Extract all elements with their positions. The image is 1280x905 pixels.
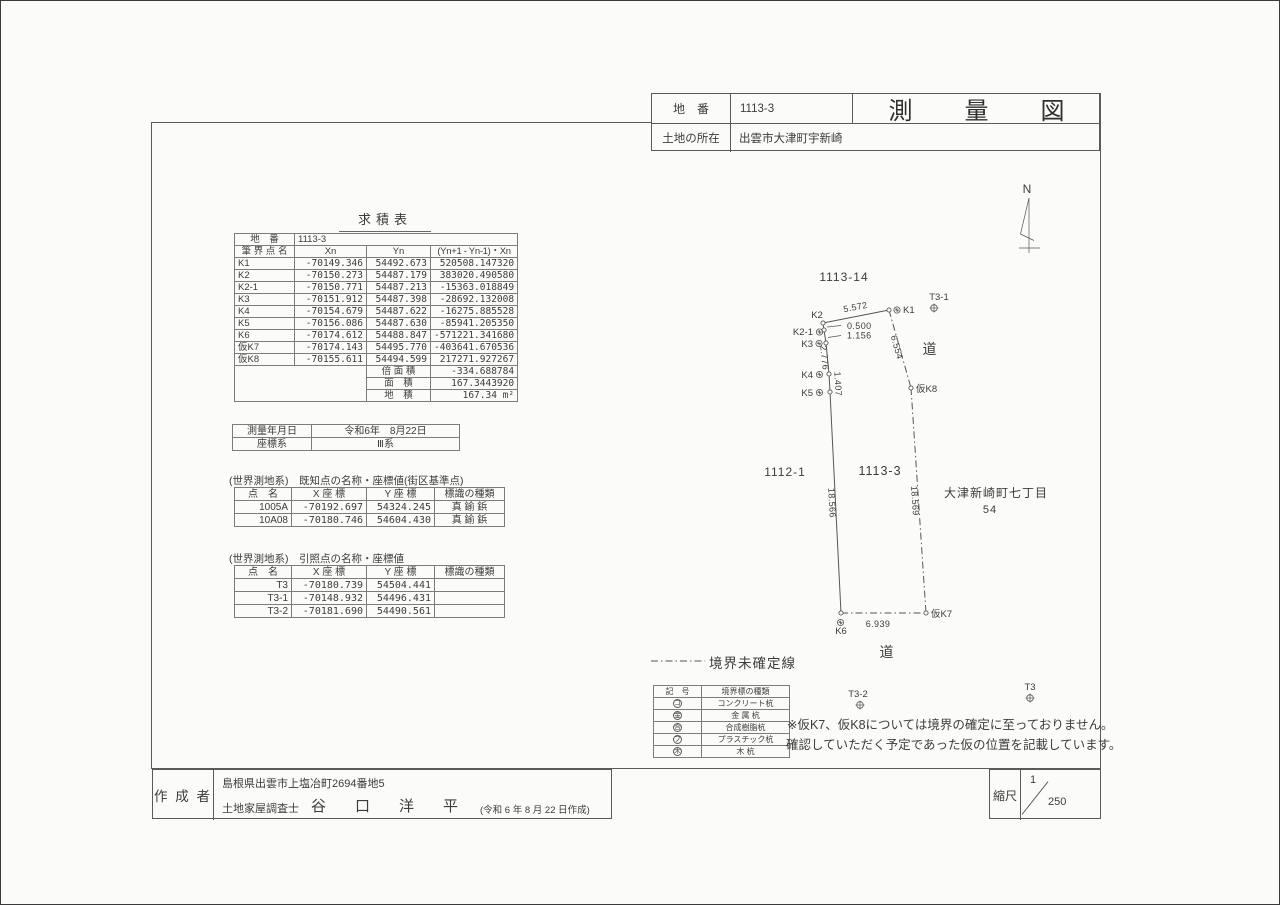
boundary-marker-symbols [816,307,900,626]
table: 記 号境界標の種類ココンクリート杭金金 属 杭合合成樹脂杭ププラスチック杭木木 … [653,685,790,758]
boundary-line-undetermined [911,388,926,613]
land-location-label: 土地の所在 [652,123,730,152]
table-cell: -16275.885528 [431,306,518,318]
boundary-line [823,310,889,323]
parcel-label-cell: 地 番 [235,234,295,246]
table-cell: -70155.611 [295,354,367,366]
author-block: 作 成 者 島根県出雲市上塩冶町2694番地5 土地家屋調査士 谷 口 洋 平 … [152,769,612,819]
area-label: 道 [923,341,938,357]
vertex-point [828,390,832,394]
point-labels: K1K2K2-1K3K4K5K6仮K7仮K8T3-1T3T3-2 [793,292,1036,700]
point-label: K5 [801,388,813,399]
column-header-cell: Yn [367,246,431,258]
column-header-cell: X 座 標 [292,488,367,501]
table-cell: -70150.273 [295,270,367,282]
table-row: ププラスチック杭 [654,734,790,746]
note-line-1: ※仮K7、仮K8については境界の確定に至っておりません。 [787,714,1114,733]
table-cell: -15363.018849 [431,282,518,294]
table-cell: K2-1 [235,282,295,294]
parcel-area-value: 167.34 m² [431,390,518,402]
legend-label-cell: コンクリート杭 [702,698,790,710]
marker-tick [818,373,821,376]
reference-points-caption: (世界測地系) 引照点の名称・座標値 [229,551,404,566]
boundary-line-undetermined [889,310,911,388]
ref-marker-circle [931,305,938,312]
table-cell: T3-1 [235,592,292,605]
point-label: K2 [811,310,823,321]
marker-tick [818,331,821,334]
table-cell: 54490.561 [367,605,435,618]
table-cell: -70180.739 [292,579,367,592]
table-cell: 54492.673 [367,258,431,270]
dimension-label: 1.156 [847,331,872,341]
vertex-point [839,611,843,615]
reference-points-table: 点 名X 座 標Y 座 標標識の種類T3-70180.73954504.441T… [234,565,505,618]
table-row: 点 名X 座 標Y 座 標標識の種類 [235,488,505,501]
parcel-and-road-labels: 1113-141112-11113-3大津新崎町七丁目54道道 [764,270,1048,660]
table-cell [435,605,505,618]
table-row: 仮K8-70155.61154494.599217271.927267 [235,354,518,366]
table-cell: -28692.132008 [431,294,518,306]
area-label: 1112-1 [764,465,806,479]
table: 地 番1113-3筆 界 点 名XnYn(Yn+1 - Yn-1)・XnK1-7… [234,233,518,402]
marker-tick [839,621,842,624]
table-cell: T3-2 [235,605,292,618]
area-calculation-table: 地 番1113-3筆 界 点 名XnYn(Yn+1 - Yn-1)・XnK1-7… [234,233,518,402]
area-label: 54 [983,504,997,516]
column-header-cell: (Yn+1 - Yn-1)・Xn [431,246,518,258]
marker-circle [816,340,822,346]
scale-denominator: 250 [1048,796,1066,808]
frame-left [151,122,152,769]
column-header-cell: 点 名 [235,488,292,501]
table-cell: K4 [235,306,295,318]
ref-marker-circle [1027,695,1034,702]
empty-cell [235,366,367,402]
table-row: K2-70150.27354487.179383020.490580 [235,270,518,282]
dimension-label: 6.554 [889,334,905,360]
table-row: 10A08-70180.74654604.430真 鍮 鋲 [235,514,505,527]
area-label: 1113-3 [858,464,901,478]
table-cell: 1005A [235,501,292,514]
table-row: 座標系Ⅲ系 [233,438,460,451]
table-row: 記 号境界標の種類 [654,686,790,698]
area-label: 1113-14 [819,270,868,284]
dimension-labels: 5.5720.5001.1562.7761.40718.5666.55418.5… [818,300,921,629]
marker-tick [818,391,821,394]
table-cell: -70154.679 [295,306,367,318]
dimension-label: 1.407 [832,371,843,396]
north-label: N [1023,182,1032,196]
boundary-line [824,330,826,343]
point-label: T3-1 [929,292,949,303]
area-table-title: 求積表 [339,209,431,232]
column-header-cell: Y 座 標 [367,566,435,579]
known-points-table: 点 名X 座 標Y 座 標標識の種類1005A-70192.69754324.2… [234,487,505,527]
vertex-point [887,308,891,312]
legend-label-cell: 合成樹脂杭 [702,722,790,734]
dimension-label: 6.939 [866,619,891,629]
note-line-2: 確認していただく予定であった仮の位置を記載しています。 [786,734,1121,753]
table-row: K3-70151.91254487.398-28692.132008 [235,294,518,306]
created-date-note: (令和 6 年 8 月 22 日作成) [480,802,590,816]
table-cell: 54487.630 [367,318,431,330]
undetermined-boundary-sample-line [649,653,707,667]
table-cell: 54487.398 [367,294,431,306]
table-cell: -70149.346 [295,258,367,270]
table-cell: -70150.771 [295,282,367,294]
point-label: T3 [1024,682,1035,693]
dimension-label: 0.500 [847,321,872,331]
document-title-text: 測量図 [889,91,1117,126]
known-points-caption: (世界測地系) 既知点の名称・座標値(街区基準点) [229,473,464,488]
scale-numerator: 1 [1030,774,1036,786]
legend-symbol-cell: 木 [654,746,702,758]
area-label: 大津新崎町七丁目 [944,485,1048,500]
table-cell: T3 [235,579,292,592]
table-row: 仮K7-70174.14354495.770-403641.670536 [235,342,518,354]
boundary-marker-symbol: プ [673,735,682,744]
table-cell: 54487.179 [367,270,431,282]
table-cell: 令和6年 8月22日 [312,425,460,438]
double-area-label: 倍 面 積 [367,366,431,378]
table-row: 倍 面 積-334.688784 [235,366,518,378]
header-title-block: 地 番 1113-3 測量図 土地の所在 出雲市大津町宇新崎 [651,93,1100,151]
boundary-line [830,392,841,613]
legend-symbol-cell: 金 [654,710,702,722]
scale-label: 縮尺 [990,770,1020,820]
table: 点 名X 座 標Y 座 標標識の種類T3-70180.73954504.441T… [234,565,505,618]
vertex-point [821,321,825,325]
table-cell: -70156.086 [295,318,367,330]
table-cell: K6 [235,330,295,342]
leader-line [827,326,841,328]
vertex-point [909,386,913,390]
table-cell: 54496.431 [367,592,435,605]
table-cell: 54604.430 [367,514,435,527]
table-row: 木木 杭 [654,746,790,758]
marker-circle [894,307,900,313]
table-cell: 真 鍮 鋲 [435,501,505,514]
table-row: T3-70180.73954504.441 [235,579,505,592]
legend-label-cell: プラスチック杭 [702,734,790,746]
scale-divider [1020,770,1021,820]
table-row: 点 名X 座 標Y 座 標標識の種類 [235,566,505,579]
point-label: K2-1 [793,327,813,338]
table-cell: -571221.341680 [431,330,518,342]
legend-symbol-cell: 合 [654,722,702,734]
parcel-number-label: 地 番 [652,94,730,123]
table-row: K5-70156.08654487.630-85941.205350 [235,318,518,330]
table-cell: 座標系 [233,438,312,451]
reference-point-markers [856,304,1035,710]
vertex-point [924,611,928,615]
dimension-label: 18.566 [826,488,838,518]
parcel-number-value: 1113-3 [730,94,852,123]
table: 測量年月日令和6年 8月22日座標系Ⅲ系 [232,424,460,451]
table-cell: -85941.205350 [431,318,518,330]
table: 点 名X 座 標Y 座 標標識の種類1005A-70192.69754324.2… [234,487,505,527]
table-cell: 測量年月日 [233,425,312,438]
legend-label-cell: 金 属 杭 [702,710,790,722]
table-cell: 真 鍮 鋲 [435,514,505,527]
table-row: K2-1-70150.77154487.213-15363.018849 [235,282,518,294]
dimension-label: 2.776 [818,345,831,370]
surveyor-name: 谷 口 洋 平 [311,795,465,816]
table-cell: -70148.932 [292,592,367,605]
table-cell: K3 [235,294,295,306]
legend-table: 記 号境界標の種類ココンクリート杭金金 属 杭合合成樹脂杭ププラスチック杭木木 … [653,685,790,758]
vertex-point [827,372,831,376]
north-arrow-flag [1021,198,1035,241]
undetermined-boundary-label: 境界未確定線 [709,652,796,672]
column-header-cell: 点 名 [235,566,292,579]
double-area-value: -334.688784 [431,366,518,378]
table-row: K4-70154.67954487.622-16275.885528 [235,306,518,318]
vertex-point [824,341,828,345]
legend-symbol-cell: プ [654,734,702,746]
table-cell [435,592,505,605]
boundary-line [823,323,824,330]
ref-marker-circle [857,702,864,709]
table-row: 測量年月日令和6年 8月22日 [233,425,460,438]
area-label: 面 積 [367,378,431,390]
table-cell: 54495.770 [367,342,431,354]
marker-circle [816,329,822,335]
area-label: 道 [880,644,895,660]
boundary-marker-symbol: 金 [673,711,682,720]
table-row: K1-70149.34654492.673520508.147320 [235,258,518,270]
boundary-marker-symbol: 木 [673,747,682,756]
point-label: 仮K8 [916,383,937,395]
leader-line [828,336,841,338]
table-cell: 仮K7 [235,342,295,354]
author-address: 島根県出雲市上塩冶町2694番地5 [222,775,385,791]
table-row: T3-2-70181.69054490.561 [235,605,505,618]
table-cell [435,579,505,592]
parcel-boundary-lines [823,310,926,613]
dimension-leader-lines [827,326,841,338]
table-cell: K2 [235,270,295,282]
area-value: 167.3443920 [431,378,518,390]
table-cell: 仮K8 [235,354,295,366]
table-cell: -403641.670536 [431,342,518,354]
legend-label-cell: 木 杭 [702,746,790,758]
marker-circle [816,371,822,377]
marker-circle [816,389,822,395]
column-header-cell: 標識の種類 [435,566,505,579]
column-header-cell: 記 号 [654,686,702,698]
column-header-cell: 筆 界 点 名 [235,246,295,258]
boundary-line [826,343,829,374]
frame-right [1100,93,1101,819]
scale-block: 縮尺 1 250 [989,769,1101,819]
column-header-cell: 境界標の種類 [702,686,790,698]
boundary-point-vertices [821,308,928,615]
boundary-marker-symbol: コ [673,699,682,708]
table-row: 地 番1113-3 [235,234,518,246]
point-label: K4 [801,370,813,381]
north-arrow: N [1019,182,1040,253]
column-header-cell: Y 座 標 [367,488,435,501]
table-row: K6-70174.61254488.847-571221.341680 [235,330,518,342]
table-row: 合合成樹脂杭 [654,722,790,734]
boundary-line [829,374,830,392]
point-label: K6 [835,626,847,637]
table-cell: -70174.612 [295,330,367,342]
column-header-cell: Xn [295,246,367,258]
boundary-marker-symbol: 合 [673,723,682,732]
marker-tick [818,342,821,345]
document-title: 測量図 [852,94,1101,123]
table-cell: -70151.912 [295,294,367,306]
author-label: 作 成 者 [153,770,213,820]
marker-circle [837,619,843,625]
parcel-area-label: 地 積 [367,390,431,402]
table-cell: K1 [235,258,295,270]
table-row: 1005A-70192.69754324.245真 鍮 鋲 [235,501,505,514]
point-label: K3 [801,339,813,350]
table-cell: 54324.245 [367,501,435,514]
table-cell: 54494.599 [367,354,431,366]
marker-tick [896,309,899,312]
table-cell: Ⅲ系 [312,438,460,451]
point-label: T3-2 [848,689,868,700]
vertex-point [822,328,826,332]
table-row: 筆 界 点 名XnYn(Yn+1 - Yn-1)・Xn [235,246,518,258]
table-cell: -70181.690 [292,605,367,618]
table-row: 金金 属 杭 [654,710,790,722]
table-cell: K5 [235,318,295,330]
column-header-cell: X 座 標 [292,566,367,579]
table-cell: 54487.622 [367,306,431,318]
table-cell: 520508.147320 [431,258,518,270]
table-cell: 383020.490580 [431,270,518,282]
table-cell: 54504.441 [367,579,435,592]
table-cell: 54487.213 [367,282,431,294]
dimension-label: 5.572 [842,300,868,314]
author-divider [213,770,214,820]
table-cell: -70180.746 [292,514,367,527]
scale-slash [1022,781,1049,815]
column-header-cell: 標識の種類 [435,488,505,501]
table-cell: 10A08 [235,514,292,527]
point-label: 仮K7 [931,608,952,620]
table-row: ココンクリート杭 [654,698,790,710]
land-location-value: 出雲市大津町宇新崎 [730,123,1101,152]
table-cell: 54488.847 [367,330,431,342]
surveyor-title: 土地家屋調査士 [222,800,299,816]
parcel-number-cell: 1113-3 [295,234,518,246]
table-cell: 217271.927267 [431,354,518,366]
frame-top [151,122,651,123]
table-cell: -70174.143 [295,342,367,354]
survey-map-page: 地 番 1113-3 測量図 土地の所在 出雲市大津町宇新崎 求積表 地 番11… [0,0,1280,905]
dimension-label: 18.569 [909,486,921,517]
point-label: K1 [903,305,915,316]
survey-info-table: 測量年月日令和6年 8月22日座標系Ⅲ系 [232,424,460,451]
table-row: T3-1-70148.93254496.431 [235,592,505,605]
table-cell: -70192.697 [292,501,367,514]
legend-symbol-cell: コ [654,698,702,710]
